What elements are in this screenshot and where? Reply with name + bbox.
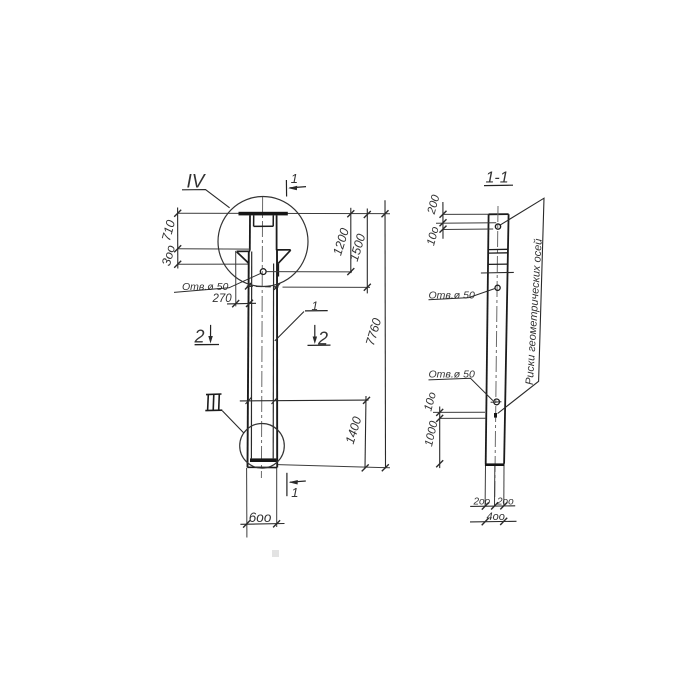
svg-text:1: 1	[291, 171, 298, 186]
svg-text:2oo: 2oo	[473, 497, 491, 508]
svg-text:Риски геометрических осей: Риски геометрических осей	[524, 238, 545, 385]
svg-text:4oo: 4oo	[487, 511, 505, 523]
svg-text:1400: 1400	[343, 415, 365, 446]
svg-text:1500: 1500	[347, 232, 369, 263]
svg-text:7760: 7760	[363, 317, 384, 348]
svg-text:200: 200	[426, 193, 443, 216]
svg-text:3oo: 3oo	[159, 244, 178, 268]
svg-text:1000: 1000	[423, 419, 441, 447]
svg-text:270: 270	[212, 293, 233, 305]
svg-text:6oo: 6oo	[249, 510, 272, 525]
svg-text:2oo: 2oo	[496, 496, 514, 507]
svg-text:1: 1	[291, 485, 298, 500]
svg-text:10o: 10o	[425, 225, 442, 247]
svg-text:2: 2	[194, 327, 205, 347]
svg-text:710: 710	[159, 219, 178, 243]
svg-text:1-1: 1-1	[486, 170, 509, 187]
svg-text:10o: 10o	[422, 390, 439, 412]
